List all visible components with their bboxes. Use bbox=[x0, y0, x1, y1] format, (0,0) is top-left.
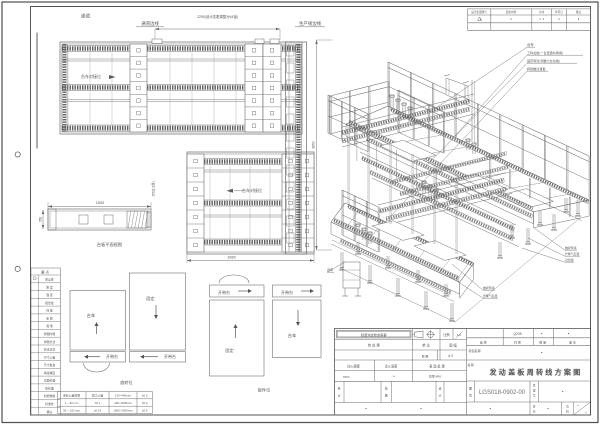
svg-text:新 颖: 新 颖 bbox=[46, 316, 53, 321]
svg-text:开带台: 开带台 bbox=[281, 289, 293, 295]
svg-text:台车对接位: 台车对接位 bbox=[81, 73, 101, 79]
svg-text:尺寸板金: 尺寸板金 bbox=[44, 362, 56, 367]
svg-text:比例: 比例 bbox=[443, 332, 449, 337]
svg-text:固定: 固定 bbox=[225, 347, 233, 354]
svg-text:设: 设 bbox=[438, 386, 441, 391]
svg-text:单 位: 单 位 bbox=[422, 343, 430, 348]
svg-text:淬火深度: 淬火深度 bbox=[385, 363, 399, 368]
svg-text:变更内溶: 变更内溶 bbox=[506, 10, 517, 14]
svg-text:尺寸公差: 尺寸公差 bbox=[44, 354, 56, 359]
svg-text:图 幅: 图 幅 bbox=[449, 343, 457, 348]
svg-text:未标公差范围: 未标公差范围 bbox=[63, 393, 80, 398]
svg-text:生产线边线: 生产线边线 bbox=[299, 20, 322, 27]
svg-text:安全性: 安全性 bbox=[45, 277, 54, 282]
svg-text:刚 度: 刚 度 bbox=[46, 284, 53, 289]
svg-text:触摸传感: 触摸传感 bbox=[483, 285, 495, 290]
svg-text:通道: 通道 bbox=[81, 13, 91, 20]
svg-text:分: 分 bbox=[533, 410, 536, 414]
svg-text:组合性: 组合性 bbox=[45, 300, 54, 305]
svg-text:工料台板(一台直通共两用): 工料台板(一台直通共两用) bbox=[527, 50, 563, 55]
svg-text:开带台: 开带台 bbox=[106, 353, 118, 359]
svg-text:检: 检 bbox=[385, 386, 388, 391]
svg-text:350: 350 bbox=[39, 217, 43, 223]
svg-text:400~1000mm: 400~1000mm bbox=[114, 401, 132, 405]
svg-text:过渡板: 过渡板 bbox=[565, 257, 574, 262]
svg-text:计: 计 bbox=[438, 393, 441, 398]
svg-text:检图内容: 检图内容 bbox=[44, 331, 56, 336]
svg-text:作图方法: 作图方法 bbox=[44, 339, 56, 344]
svg-text:项目名称: 项目名称 bbox=[469, 348, 481, 353]
svg-text:认: 认 bbox=[337, 393, 340, 398]
svg-text:页: 页 bbox=[566, 405, 569, 409]
svg-text:旋转位: 旋转位 bbox=[120, 379, 133, 386]
svg-text:1650: 1650 bbox=[227, 256, 235, 260]
svg-text:热 处 理: 热 处 理 bbox=[368, 343, 380, 348]
svg-text:材 质: 材 质 bbox=[514, 339, 521, 344]
svg-text:要 点: 要 点 bbox=[41, 270, 49, 275]
svg-text:1500: 1500 bbox=[96, 201, 104, 205]
svg-text:标注记号: 标注记号 bbox=[44, 347, 56, 352]
svg-text:表 面 处 理: 表 面 处 理 bbox=[429, 363, 445, 368]
svg-text:材质规格: 材质规格 bbox=[44, 393, 56, 398]
svg-text:120~400mm: 120~400mm bbox=[115, 394, 132, 398]
svg-text:台车: 台车 bbox=[527, 42, 534, 47]
svg-text:±0.3: ±0.3 bbox=[142, 401, 148, 405]
svg-text:理: 理 bbox=[533, 389, 536, 393]
svg-text:Q235: Q235 bbox=[513, 332, 521, 336]
svg-text:名称: 名称 bbox=[468, 362, 474, 367]
svg-text:3850: 3850 bbox=[312, 141, 316, 149]
svg-text:·: · bbox=[483, 332, 484, 336]
svg-text:斜铁做过渡板: 斜铁做过渡板 bbox=[527, 66, 546, 71]
svg-text:强 度: 强 度 bbox=[46, 292, 53, 297]
svg-text:台板平面视图: 台板平面视图 bbox=[97, 241, 122, 248]
svg-text:台车: 台车 bbox=[288, 332, 296, 339]
svg-text:开带台: 开带台 bbox=[218, 289, 230, 295]
svg-text:精度测定检查表要: 精度测定检查表要 bbox=[361, 332, 387, 337]
svg-text:区: 区 bbox=[533, 405, 536, 409]
svg-text:喷塑 4R6: 喷塑 4R6 bbox=[429, 374, 441, 379]
svg-text:±0.5: ±0.5 bbox=[142, 408, 148, 412]
svg-text:±0.1: ±0.1 bbox=[95, 401, 101, 405]
svg-text:年月日: 年月日 bbox=[555, 10, 563, 14]
svg-text:确认: 确认 bbox=[47, 409, 53, 414]
svg-text:整 图: 整 图 bbox=[422, 353, 429, 358]
svg-text:±0.2: ±0.2 bbox=[142, 394, 148, 398]
svg-text:号: 号 bbox=[469, 393, 472, 398]
svg-text:图: 图 bbox=[385, 394, 388, 398]
svg-text:管: 管 bbox=[533, 384, 536, 388]
svg-text:取件位: 取件位 bbox=[258, 387, 271, 394]
svg-text:表面处理: 表面处理 bbox=[44, 378, 56, 383]
svg-text:1000~2000mm: 1000~2000mm bbox=[113, 408, 133, 412]
svg-text:数 量: 数 量 bbox=[539, 339, 546, 344]
svg-text:2200(设计变更调整为54锁): 2200(设计变更调整为54锁) bbox=[197, 14, 238, 19]
svg-text:HRC: HRC bbox=[343, 375, 350, 379]
svg-text:焊接精度: 焊接精度 bbox=[44, 370, 56, 375]
svg-text:A 3: A 3 bbox=[448, 354, 453, 358]
svg-text:固定滑道(调整七台台板): 固定滑道(调整七台台板) bbox=[527, 58, 560, 63]
svg-text:担当: 担当 bbox=[539, 10, 545, 14]
svg-text:图: 图 bbox=[469, 387, 472, 391]
svg-text:通道边线: 通道边线 bbox=[141, 20, 159, 27]
svg-text:升降气缸组: 升降气缸组 bbox=[565, 251, 580, 256]
svg-text:淬火硬度: 淬火硬度 bbox=[347, 363, 361, 368]
svg-text:固定: 固定 bbox=[146, 295, 154, 302]
svg-text:标准件: 标准件 bbox=[45, 401, 54, 406]
svg-text:加工公差: 加工公差 bbox=[92, 393, 104, 398]
svg-text:台车: 台车 bbox=[327, 267, 333, 272]
svg-text:热处理: 热处理 bbox=[45, 386, 54, 391]
svg-text:台车对接位: 台车对接位 bbox=[242, 187, 262, 193]
svg-text:LGS018-0902-00: LGS018-0902-00 bbox=[479, 390, 526, 396]
svg-text:发动盖板周转线方案图: 发动盖板周转线方案图 bbox=[490, 368, 583, 377]
svg-text:备 注: 备 注 bbox=[569, 339, 576, 344]
svg-text:其 他: 其 他 bbox=[46, 323, 53, 328]
svg-text:A: A bbox=[480, 17, 482, 21]
svg-text:150(1:9斜): 150(1:9斜) bbox=[151, 181, 156, 196]
svg-text:台车: 台车 bbox=[87, 312, 95, 319]
svg-text:±0.15: ±0.15 bbox=[94, 408, 102, 412]
svg-text:码: 码 bbox=[566, 410, 569, 414]
svg-text:号: 号 bbox=[533, 394, 536, 398]
svg-text:30 ~ 120 mm: 30 ~ 120 mm bbox=[63, 408, 81, 412]
svg-text:确认: 确认 bbox=[576, 10, 582, 14]
svg-text:品 委: 品 委 bbox=[480, 339, 487, 344]
svg-text:1 ~ 30 mm: 1 ~ 30 mm bbox=[65, 401, 79, 405]
svg-text:设计变更图号: 设计变更图号 bbox=[471, 10, 487, 14]
svg-text:开带台: 开带台 bbox=[164, 353, 176, 359]
svg-text:升降气缸组: 升降气缸组 bbox=[483, 293, 498, 298]
svg-text:触摸传感: 触摸传感 bbox=[565, 245, 577, 250]
svg-text:承: 承 bbox=[337, 386, 340, 391]
svg-text:性 能: 性 能 bbox=[46, 308, 53, 313]
